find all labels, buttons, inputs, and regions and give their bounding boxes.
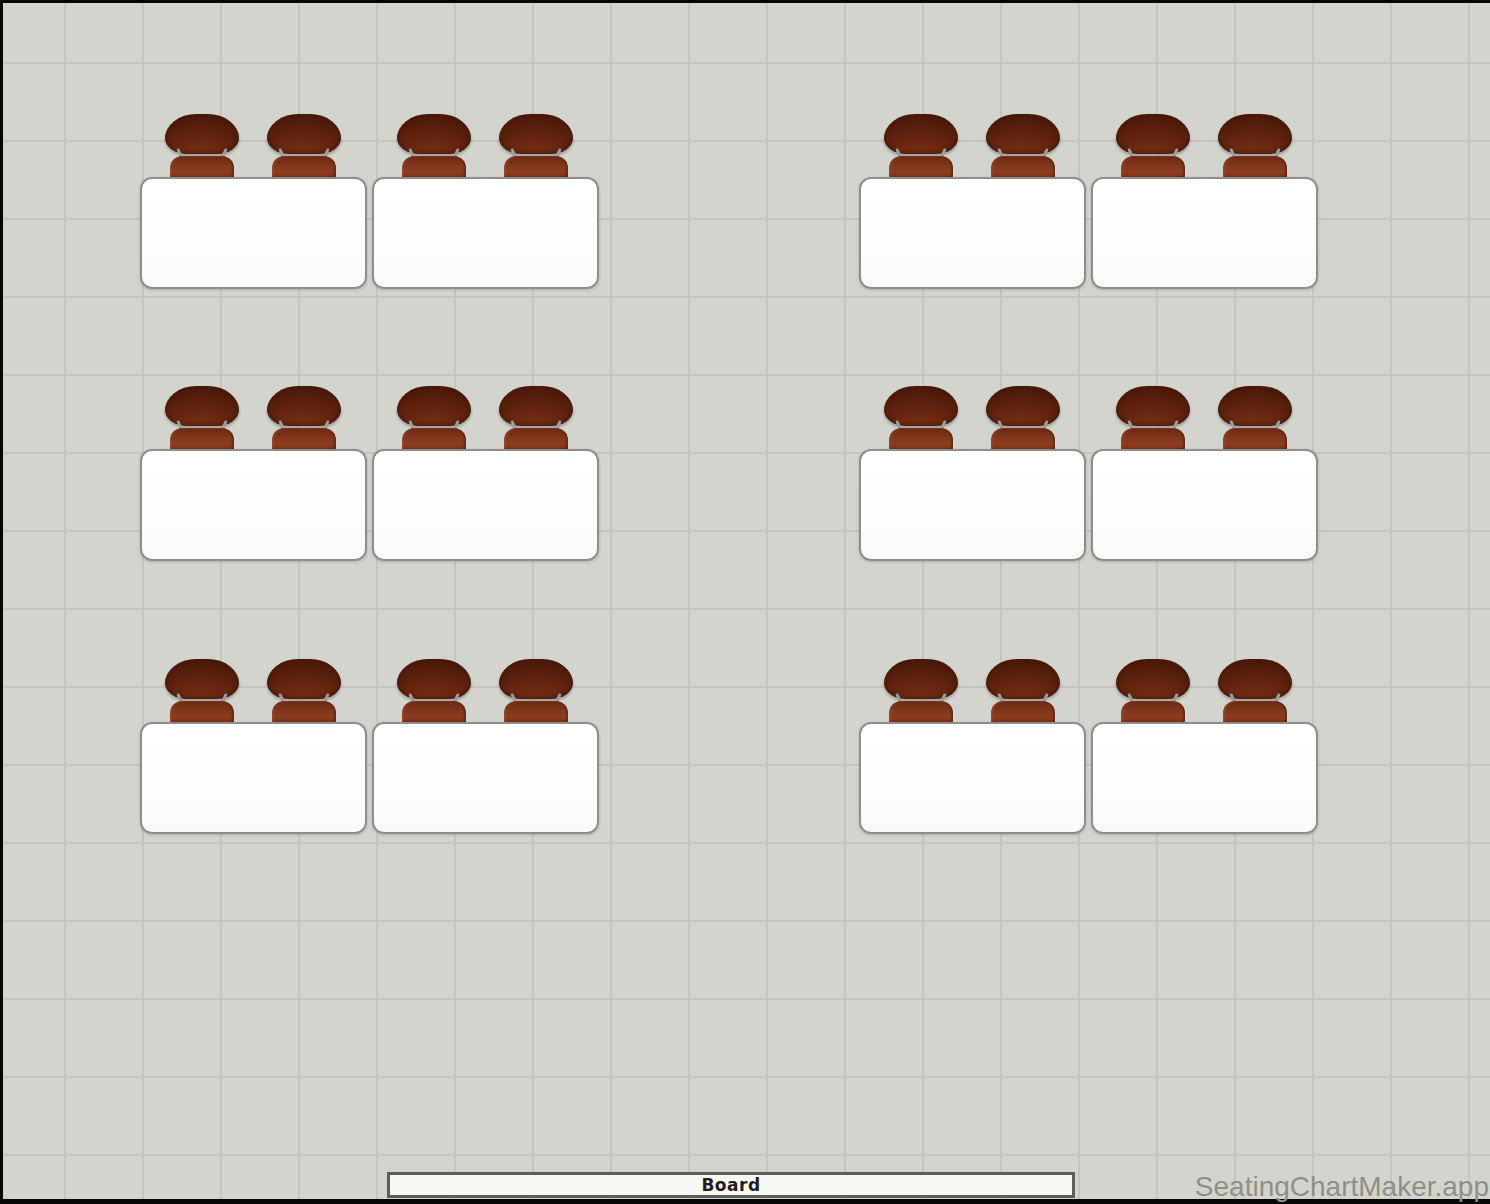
chair-icon[interactable] xyxy=(985,659,1061,726)
chair-icon[interactable] xyxy=(1115,659,1191,726)
chair-icon[interactable] xyxy=(266,659,342,726)
chair-icon[interactable] xyxy=(985,114,1061,181)
chair-icon[interactable] xyxy=(164,114,240,181)
chair-icon[interactable] xyxy=(883,659,959,726)
chair-icon[interactable] xyxy=(396,659,472,726)
desk-unit[interactable] xyxy=(140,114,368,294)
classroom-canvas[interactable]: Board SeatingChartMaker.app xyxy=(0,0,1490,1204)
desk[interactable] xyxy=(859,722,1086,834)
desk-unit[interactable] xyxy=(859,386,1087,566)
board[interactable]: Board xyxy=(387,1172,1075,1198)
chair-icon[interactable] xyxy=(1217,659,1293,726)
desk[interactable] xyxy=(859,449,1086,561)
desk[interactable] xyxy=(140,177,367,289)
chair-icon[interactable] xyxy=(396,114,472,181)
desk[interactable] xyxy=(140,449,367,561)
chair-icon[interactable] xyxy=(1217,386,1293,453)
chair-icon[interactable] xyxy=(266,386,342,453)
desk-unit[interactable] xyxy=(859,659,1087,839)
chair-icon[interactable] xyxy=(985,386,1061,453)
chair-icon[interactable] xyxy=(1115,114,1191,181)
desk[interactable] xyxy=(372,177,599,289)
chair-icon[interactable] xyxy=(883,114,959,181)
desk[interactable] xyxy=(1091,449,1318,561)
chair-icon[interactable] xyxy=(396,386,472,453)
desk-unit[interactable] xyxy=(140,659,368,839)
chair-icon[interactable] xyxy=(498,386,574,453)
desk[interactable] xyxy=(140,722,367,834)
chair-icon[interactable] xyxy=(498,659,574,726)
desk[interactable] xyxy=(1091,177,1318,289)
board-label: Board xyxy=(701,1175,760,1195)
desk-unit[interactable] xyxy=(1091,386,1319,566)
chair-icon[interactable] xyxy=(1217,114,1293,181)
desk[interactable] xyxy=(1091,722,1318,834)
desk[interactable] xyxy=(372,722,599,834)
desk-unit[interactable] xyxy=(372,114,600,294)
chair-icon[interactable] xyxy=(164,659,240,726)
chair-icon[interactable] xyxy=(883,386,959,453)
chair-icon[interactable] xyxy=(164,386,240,453)
desk-unit[interactable] xyxy=(372,386,600,566)
desk-unit[interactable] xyxy=(1091,659,1319,839)
desk[interactable] xyxy=(372,449,599,561)
desk[interactable] xyxy=(859,177,1086,289)
desk-unit[interactable] xyxy=(859,114,1087,294)
desk-unit[interactable] xyxy=(372,659,600,839)
chair-icon[interactable] xyxy=(498,114,574,181)
desk-unit[interactable] xyxy=(140,386,368,566)
chair-icon[interactable] xyxy=(266,114,342,181)
chair-icon[interactable] xyxy=(1115,386,1191,453)
desk-unit[interactable] xyxy=(1091,114,1319,294)
watermark: SeatingChartMaker.app xyxy=(1195,1171,1489,1203)
